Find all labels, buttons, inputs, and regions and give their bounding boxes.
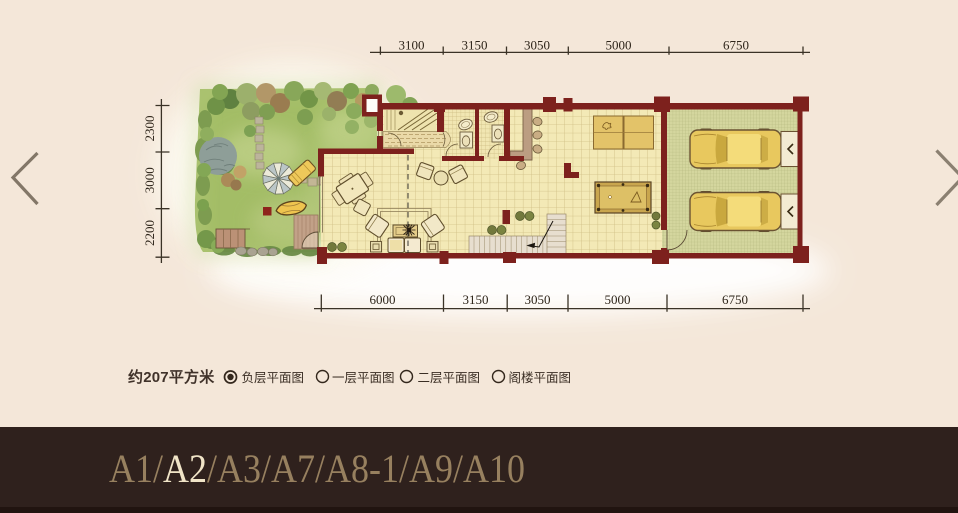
svg-text:2200: 2200 [142, 220, 157, 246]
svg-text:6750: 6750 [723, 38, 749, 53]
svg-text:5000: 5000 [605, 292, 631, 307]
svg-text:阁楼平面图: 阁楼平面图 [509, 370, 572, 385]
svg-text:负层平面图: 负层平面图 [242, 371, 305, 385]
svg-text:一层平面图: 一层平面图 [332, 371, 395, 385]
svg-text:3100: 3100 [399, 38, 425, 53]
svg-text:二层平面图: 二层平面图 [418, 371, 481, 385]
svg-text:3050: 3050 [525, 292, 551, 307]
svg-text:3150: 3150 [462, 38, 488, 53]
svg-text:5000: 5000 [606, 38, 632, 53]
svg-text:6750: 6750 [722, 292, 748, 307]
svg-text:2300: 2300 [142, 116, 157, 142]
svg-text:3050: 3050 [524, 38, 550, 53]
svg-text:3000: 3000 [142, 167, 157, 193]
svg-text:3150: 3150 [463, 292, 489, 307]
svg-text:6000: 6000 [370, 292, 396, 307]
